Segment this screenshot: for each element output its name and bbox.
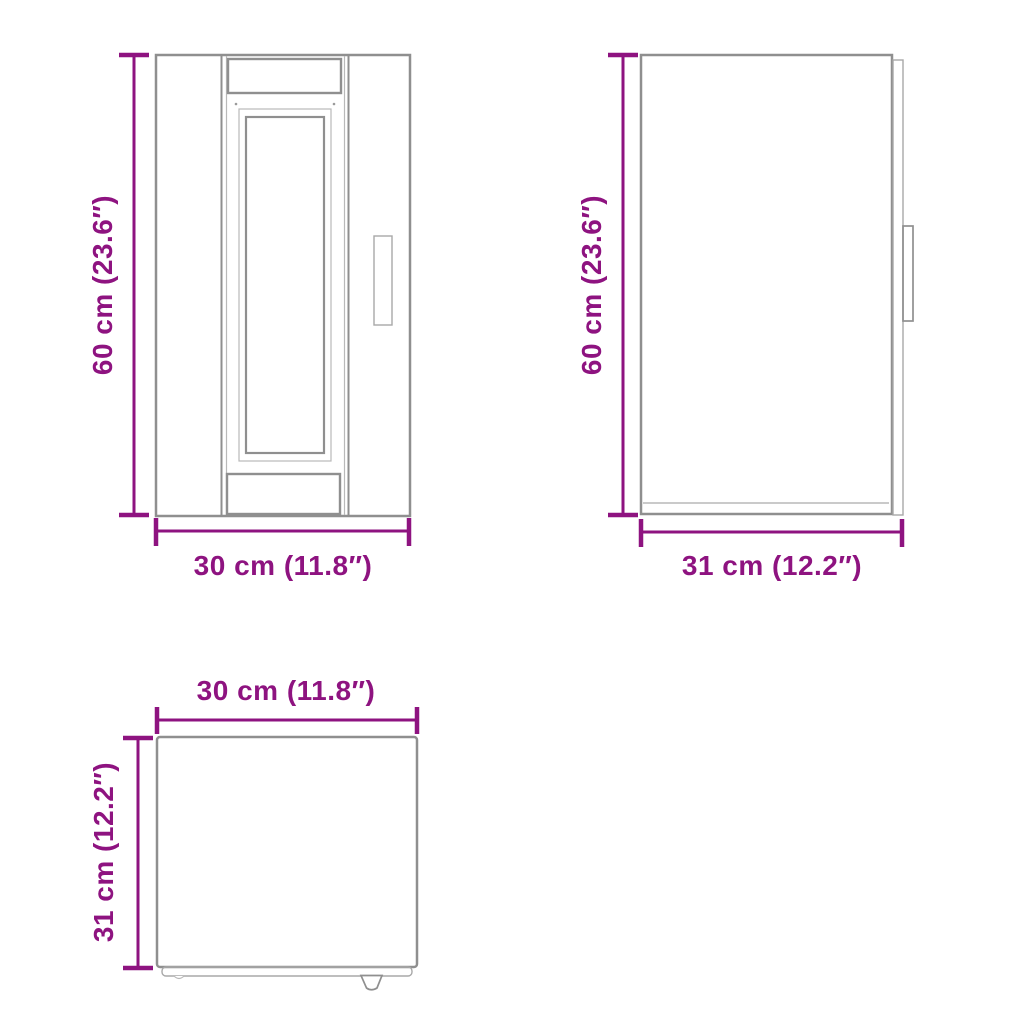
side-depth-label: 31 cm (12.2″): [682, 550, 862, 582]
door-panel-inner-frame: [246, 117, 324, 453]
side-cabinet-outline: [641, 55, 892, 514]
front-width-label: 30 cm (11.8″): [194, 550, 373, 582]
cabinet-dimension-diagram: 60 cm (23.6″) 30 cm (11.8″) 60 cm (23.6″…: [0, 0, 1024, 1024]
front-cabinet-outline: [156, 55, 410, 516]
door-handle-side: [903, 226, 913, 321]
top-width-dimension-line: [157, 707, 417, 734]
door-bottom-rail: [227, 474, 340, 514]
top-cabinet-outline: [157, 737, 417, 967]
door-panel-outer-frame: [239, 109, 331, 461]
side-height-label: 60 cm (23.6″): [576, 195, 608, 375]
top-view-drawing: [157, 737, 417, 990]
cabinet-line-drawing: [0, 0, 1024, 1024]
top-width-label: 30 cm (11.8″): [197, 675, 376, 707]
front-view-drawing: [156, 55, 410, 516]
side-door-edge: [893, 60, 903, 515]
door-handle-top-view: [361, 976, 382, 990]
top-depth-label: 31 cm (12.2″): [88, 762, 120, 942]
hinge-mark-right: [333, 103, 336, 106]
top-depth-dimension-line: [123, 738, 153, 968]
side-depth-dimension-line: [641, 519, 902, 547]
door-handle-front: [374, 236, 392, 325]
side-view-drawing: [641, 55, 913, 515]
front-width-dimension-line: [156, 518, 409, 546]
door-top-rail: [228, 59, 341, 93]
top-hinge-bump: [174, 976, 184, 979]
hinge-mark-left: [235, 103, 238, 106]
front-height-label: 60 cm (23.6″): [87, 195, 119, 375]
front-height-dimension-line: [119, 55, 149, 515]
side-height-dimension-line: [608, 55, 638, 515]
